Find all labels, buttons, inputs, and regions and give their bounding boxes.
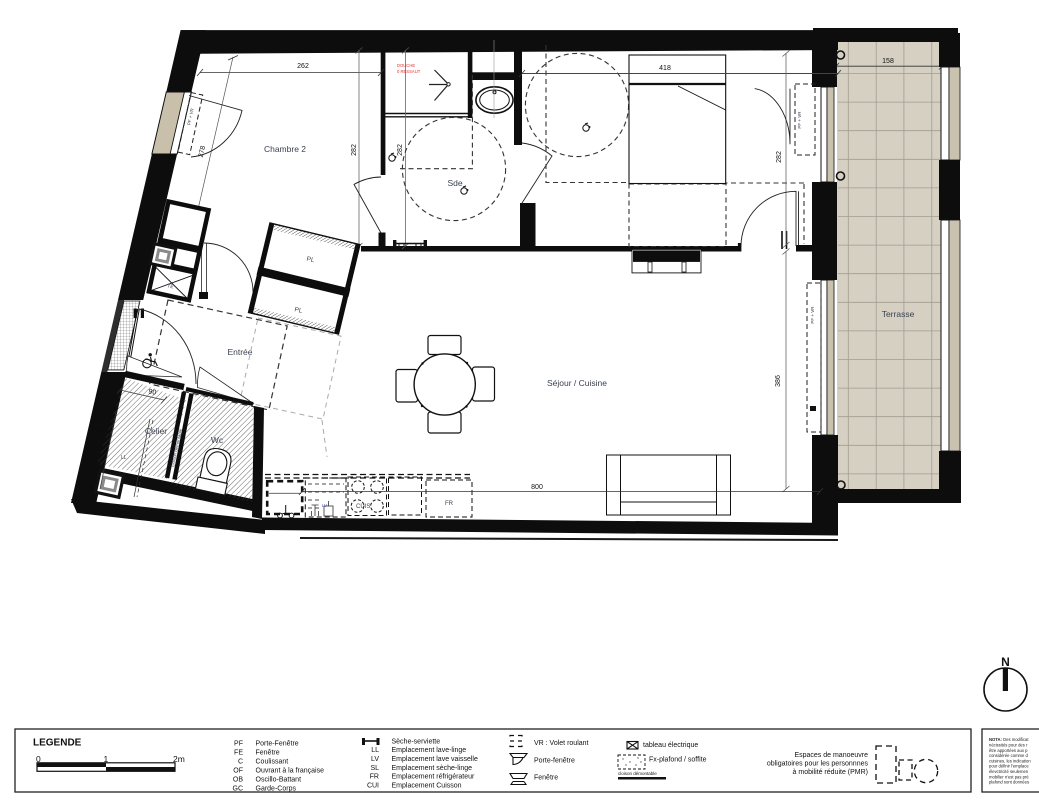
svg-text:LV: LV bbox=[322, 503, 327, 508]
svg-text:PF + VR: PF + VR bbox=[810, 306, 815, 324]
svg-text:mobilier n'est pas pré: mobilier n'est pas pré bbox=[989, 774, 1029, 779]
svg-text:FE: FE bbox=[234, 750, 243, 757]
svg-text:cloison démontable: cloison démontable bbox=[618, 771, 657, 776]
svg-text:VR : Volet roulant: VR : Volet roulant bbox=[534, 740, 589, 747]
svg-text:FR: FR bbox=[370, 774, 379, 781]
svg-text:Sde: Sde bbox=[447, 178, 462, 188]
svg-text:DOUCHE: DOUCHE bbox=[397, 63, 415, 68]
svg-text:Chambre 2: Chambre 2 bbox=[264, 144, 306, 154]
svg-text:Fx-plafond / soffite: Fx-plafond / soffite bbox=[649, 757, 707, 764]
svg-text:Séjour / Cuisine: Séjour / Cuisine bbox=[547, 378, 607, 388]
svg-text:Wc: Wc bbox=[211, 435, 224, 445]
svg-text:Coulissant: Coulissant bbox=[256, 759, 289, 766]
svg-text:282: 282 bbox=[351, 144, 358, 156]
svg-text:SL: SL bbox=[370, 765, 379, 772]
svg-text:C: C bbox=[238, 759, 243, 766]
svg-text:Garde-Corps: Garde-Corps bbox=[256, 786, 297, 793]
svg-text:nécissités pour des r: nécissités pour des r bbox=[989, 743, 1028, 748]
svg-text:OF: OF bbox=[233, 768, 243, 775]
svg-text:Emplacement Cuisson: Emplacement Cuisson bbox=[392, 782, 462, 789]
svg-text:être apportées aux p: être apportées aux p bbox=[989, 748, 1028, 753]
svg-text:Sèche-serviette: Sèche-serviette bbox=[392, 738, 441, 745]
svg-text:Espaces de manoeuvre: Espaces de manoeuvre bbox=[794, 752, 868, 759]
svg-text:Emplacement lave-linge: Emplacement lave-linge bbox=[392, 747, 467, 754]
svg-text:FR: FR bbox=[445, 501, 454, 507]
svg-text:Terrasse: Terrasse bbox=[882, 309, 915, 319]
svg-text:N: N bbox=[1001, 655, 1010, 669]
svg-text:LL: LL bbox=[371, 747, 379, 754]
svg-text:418: 418 bbox=[659, 65, 671, 72]
svg-text:Porte-Fenêtre: Porte-Fenêtre bbox=[256, 741, 299, 748]
svg-text:Entrée: Entrée bbox=[227, 347, 252, 357]
svg-text:Emplacement réfrigérateur: Emplacement réfrigérateur bbox=[392, 774, 476, 781]
svg-text:Emplacement lave vaisselle: Emplacement lave vaisselle bbox=[392, 756, 478, 763]
svg-text:considérée comme d: considérée comme d bbox=[989, 753, 1029, 758]
svg-text:cuisines, les indication: cuisines, les indication bbox=[989, 758, 1031, 763]
svg-text:élevctricité seulemen: élevctricité seulemen bbox=[989, 769, 1029, 774]
svg-text:LV: LV bbox=[371, 756, 379, 763]
svg-text:282: 282 bbox=[776, 151, 783, 163]
svg-text:tableau électrique: tableau électrique bbox=[643, 742, 698, 749]
svg-text:282: 282 bbox=[397, 144, 404, 156]
svg-text:Ouvrant à la française: Ouvrant à la française bbox=[256, 768, 325, 775]
svg-text:à mobilité réduite (PMR): à mobilité réduite (PMR) bbox=[793, 769, 868, 776]
svg-text:CUIS: CUIS bbox=[356, 504, 370, 510]
svg-text:800: 800 bbox=[531, 484, 543, 491]
svg-text:0 RESSAUT: 0 RESSAUT bbox=[397, 69, 421, 74]
svg-text:LL: LL bbox=[121, 455, 127, 461]
svg-text:Fenêtre: Fenêtre bbox=[256, 750, 280, 757]
svg-text:CUI: CUI bbox=[367, 782, 379, 789]
svg-text:obligatoires pour les personnn: obligatoires pour les personnnes bbox=[767, 761, 869, 768]
svg-text:Fenêtre: Fenêtre bbox=[534, 775, 558, 782]
svg-text:NOTA: Des modificat: NOTA: Des modificat bbox=[989, 737, 1029, 742]
svg-text:Emplacement sèche-linge: Emplacement sèche-linge bbox=[392, 765, 473, 772]
svg-text:pour définir l'emplace: pour définir l'emplace bbox=[989, 764, 1029, 769]
svg-text:plafond sont données: plafond sont données bbox=[989, 780, 1029, 785]
svg-text:158: 158 bbox=[882, 58, 894, 65]
svg-text:PF: PF bbox=[234, 741, 243, 748]
svg-text:Oscillo-Battant: Oscillo-Battant bbox=[256, 777, 302, 784]
svg-text:LEGENDE: LEGENDE bbox=[33, 738, 82, 749]
svg-text:262: 262 bbox=[297, 63, 309, 70]
svg-text:GC: GC bbox=[233, 786, 244, 793]
svg-text:PF + VR: PF + VR bbox=[797, 111, 802, 129]
svg-text:386: 386 bbox=[775, 375, 782, 387]
svg-text:OB: OB bbox=[233, 777, 243, 784]
svg-text:Porte-fenêtre: Porte-fenêtre bbox=[534, 758, 575, 765]
